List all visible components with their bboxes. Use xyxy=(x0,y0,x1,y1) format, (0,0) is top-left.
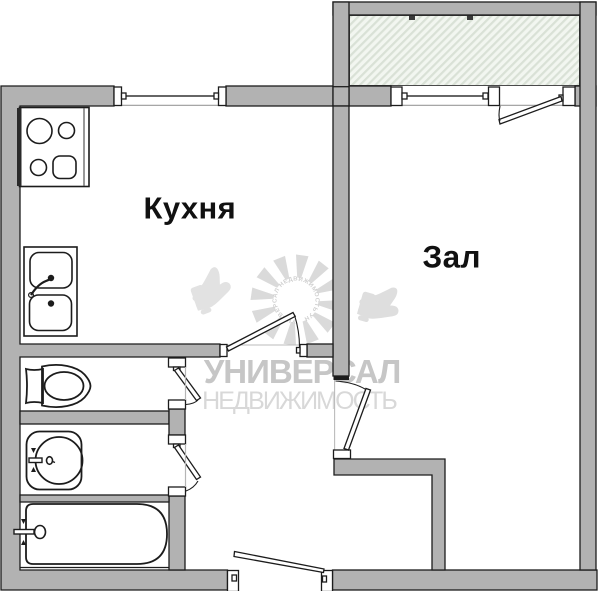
svg-text:Кухня: Кухня xyxy=(144,191,237,226)
svg-text:Зал: Зал xyxy=(423,239,481,275)
svg-text:УНИВЕРСАЛ: УНИВЕРСАЛ xyxy=(204,353,401,390)
